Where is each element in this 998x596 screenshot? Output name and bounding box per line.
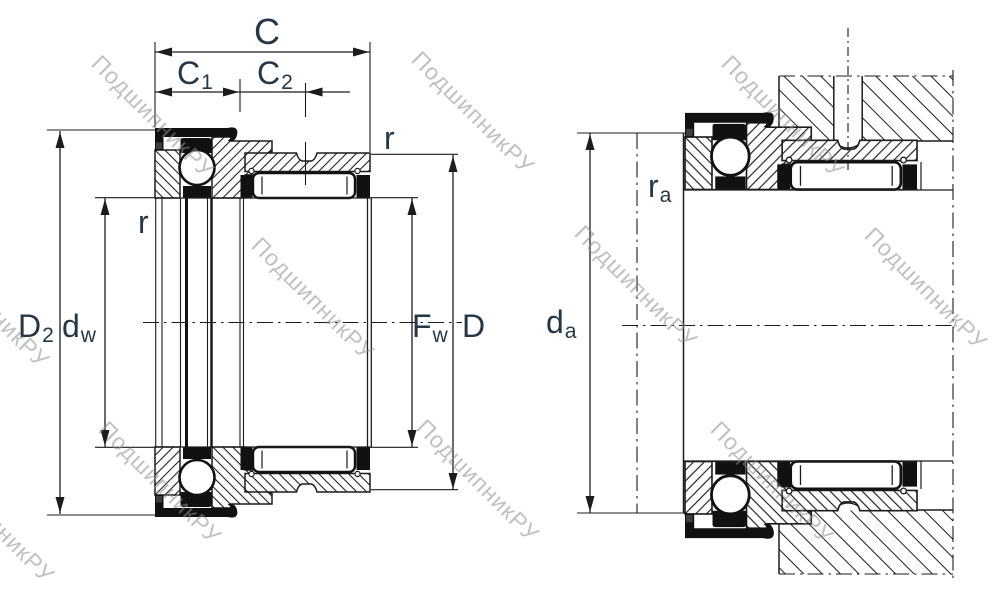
dim-label-C: C — [254, 14, 280, 50]
dim-label-D: D — [462, 310, 485, 342]
dimension-dw — [101, 198, 110, 447]
bearing-technical-drawing: C C1 C2 r r D2 dw Fw D da ra ПодшипникРУ… — [0, 0, 998, 596]
dim-label-dw: dw — [62, 310, 96, 342]
dim-label-C2: C2 — [257, 57, 293, 89]
dim-label-da: da — [546, 306, 577, 338]
left-view-cross-section — [47, 42, 462, 518]
drawing-canvas — [0, 0, 998, 596]
dim-label-D2: D2 — [18, 310, 54, 342]
right-view-mounting — [577, 28, 957, 578]
dim-label-C1: C1 — [177, 57, 213, 89]
dim-label-r-top: r — [384, 122, 395, 154]
dim-label-Fw: Fw — [412, 310, 448, 342]
dim-label-r-left: r — [138, 206, 149, 238]
dim-label-ra: ra — [648, 170, 671, 202]
